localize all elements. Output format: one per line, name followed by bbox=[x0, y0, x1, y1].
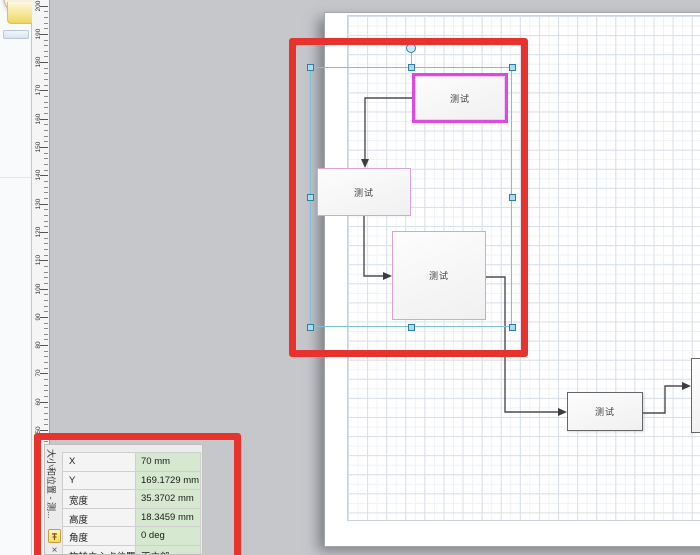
panel-divider bbox=[0, 177, 31, 178]
flow-shape-4-label: 测试 bbox=[595, 405, 615, 418]
panel-scroll-thumb[interactable] bbox=[3, 30, 29, 39]
annotation-rect-selection bbox=[289, 38, 528, 357]
flow-shape-5[interactable] bbox=[691, 358, 700, 433]
annotation-rect-panel bbox=[34, 433, 241, 555]
shapes-panel bbox=[0, 0, 32, 555]
flow-shape-4[interactable]: 测试 bbox=[567, 392, 643, 431]
